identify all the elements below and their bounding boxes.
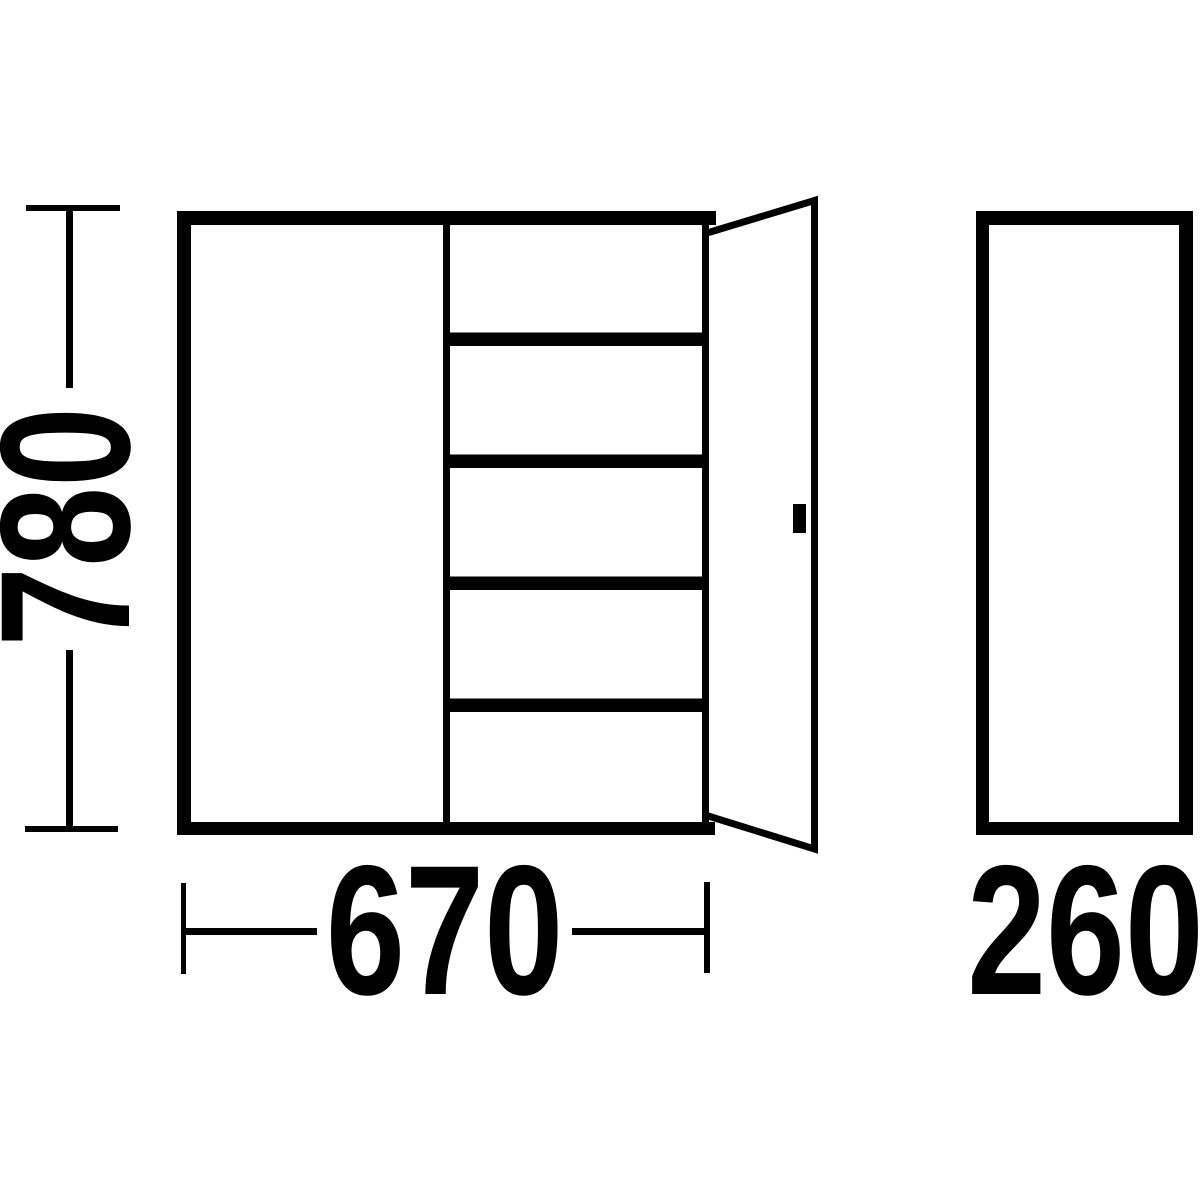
svg-text:780: 780 [0, 407, 169, 647]
svg-text:260: 260 [967, 827, 1200, 1034]
svg-text:670: 670 [326, 827, 564, 1033]
